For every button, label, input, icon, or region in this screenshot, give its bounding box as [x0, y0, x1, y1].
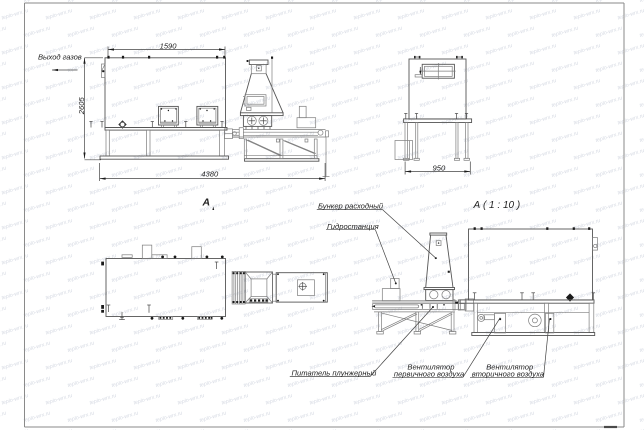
svg-text:первичного воздуха: первичного воздуха [394, 369, 464, 378]
svg-text:2605: 2605 [77, 97, 86, 116]
svg-text:Бункер расходный: Бункер расходный [318, 202, 384, 211]
svg-text:Выход газов: Выход газов [38, 52, 82, 61]
svg-text:4380: 4380 [201, 169, 219, 178]
svg-text:Питатель плунжерный: Питатель плунжерный [292, 369, 378, 378]
svg-text:вторичного воздуха: вторичного воздуха [472, 369, 544, 378]
svg-text:А ( 1 : 10 ): А ( 1 : 10 ) [473, 200, 521, 211]
svg-text:1590: 1590 [160, 41, 178, 50]
svg-text:950: 950 [433, 164, 446, 173]
svg-text:А: А [202, 197, 211, 209]
svg-text:Гидростанция: Гидростанция [327, 222, 379, 231]
